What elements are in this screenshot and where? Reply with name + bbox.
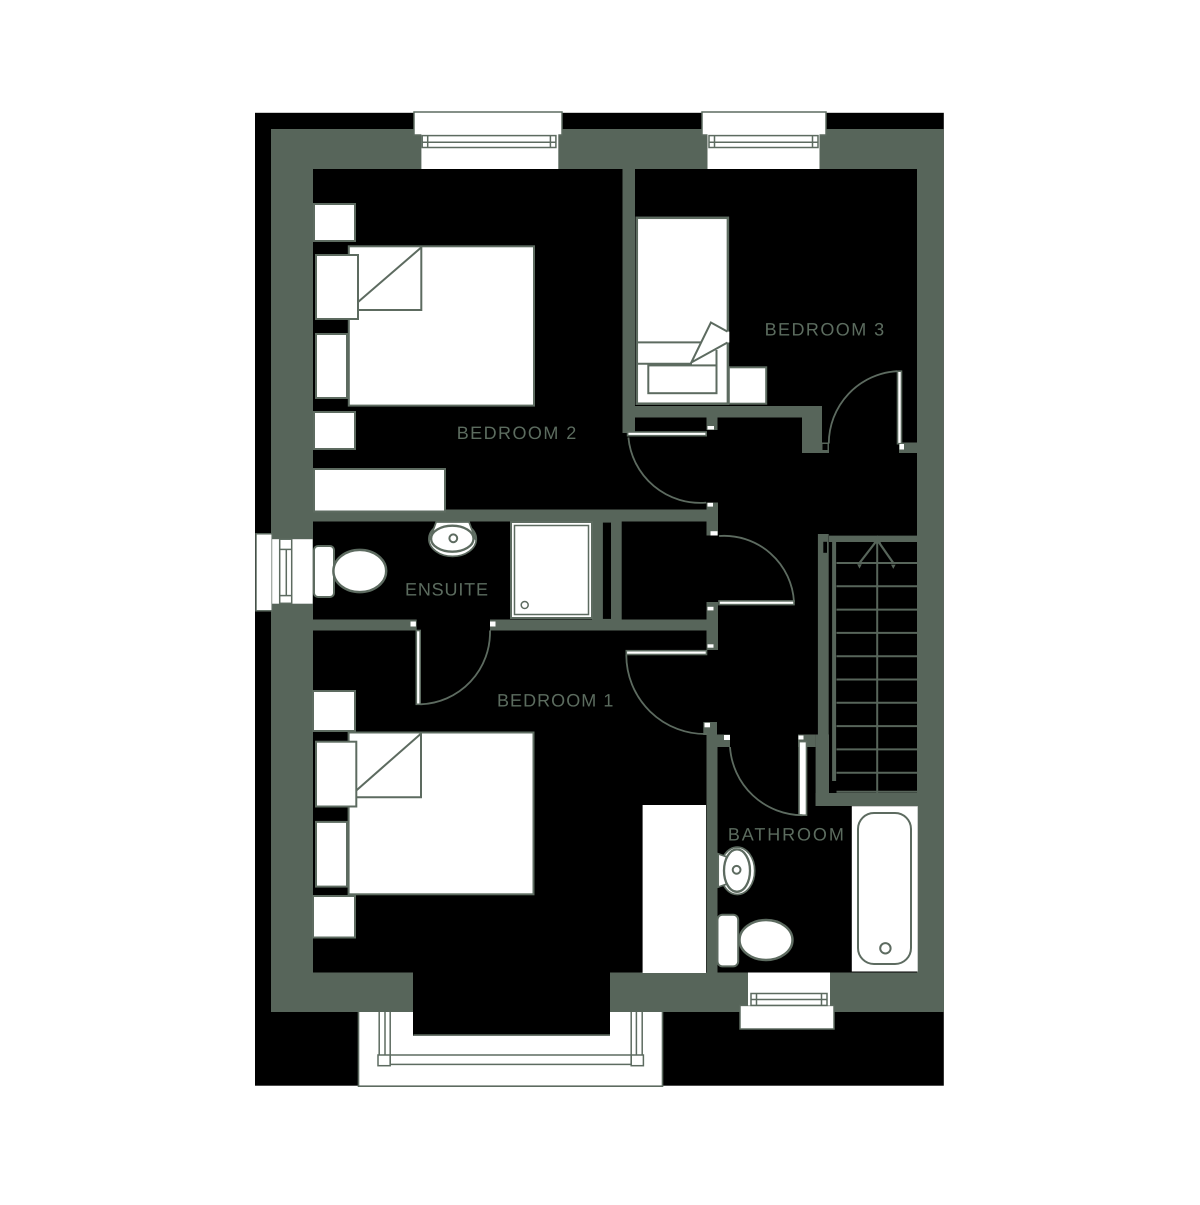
svg-text:BEDROOM 1: BEDROOM 1 (497, 691, 614, 711)
svg-text:ENSUITE: ENSUITE (405, 580, 489, 600)
svg-text:BATHROOM: BATHROOM (728, 825, 846, 845)
svg-text:BEDROOM 2: BEDROOM 2 (457, 423, 578, 443)
svg-text:BEDROOM 3: BEDROOM 3 (765, 320, 886, 340)
